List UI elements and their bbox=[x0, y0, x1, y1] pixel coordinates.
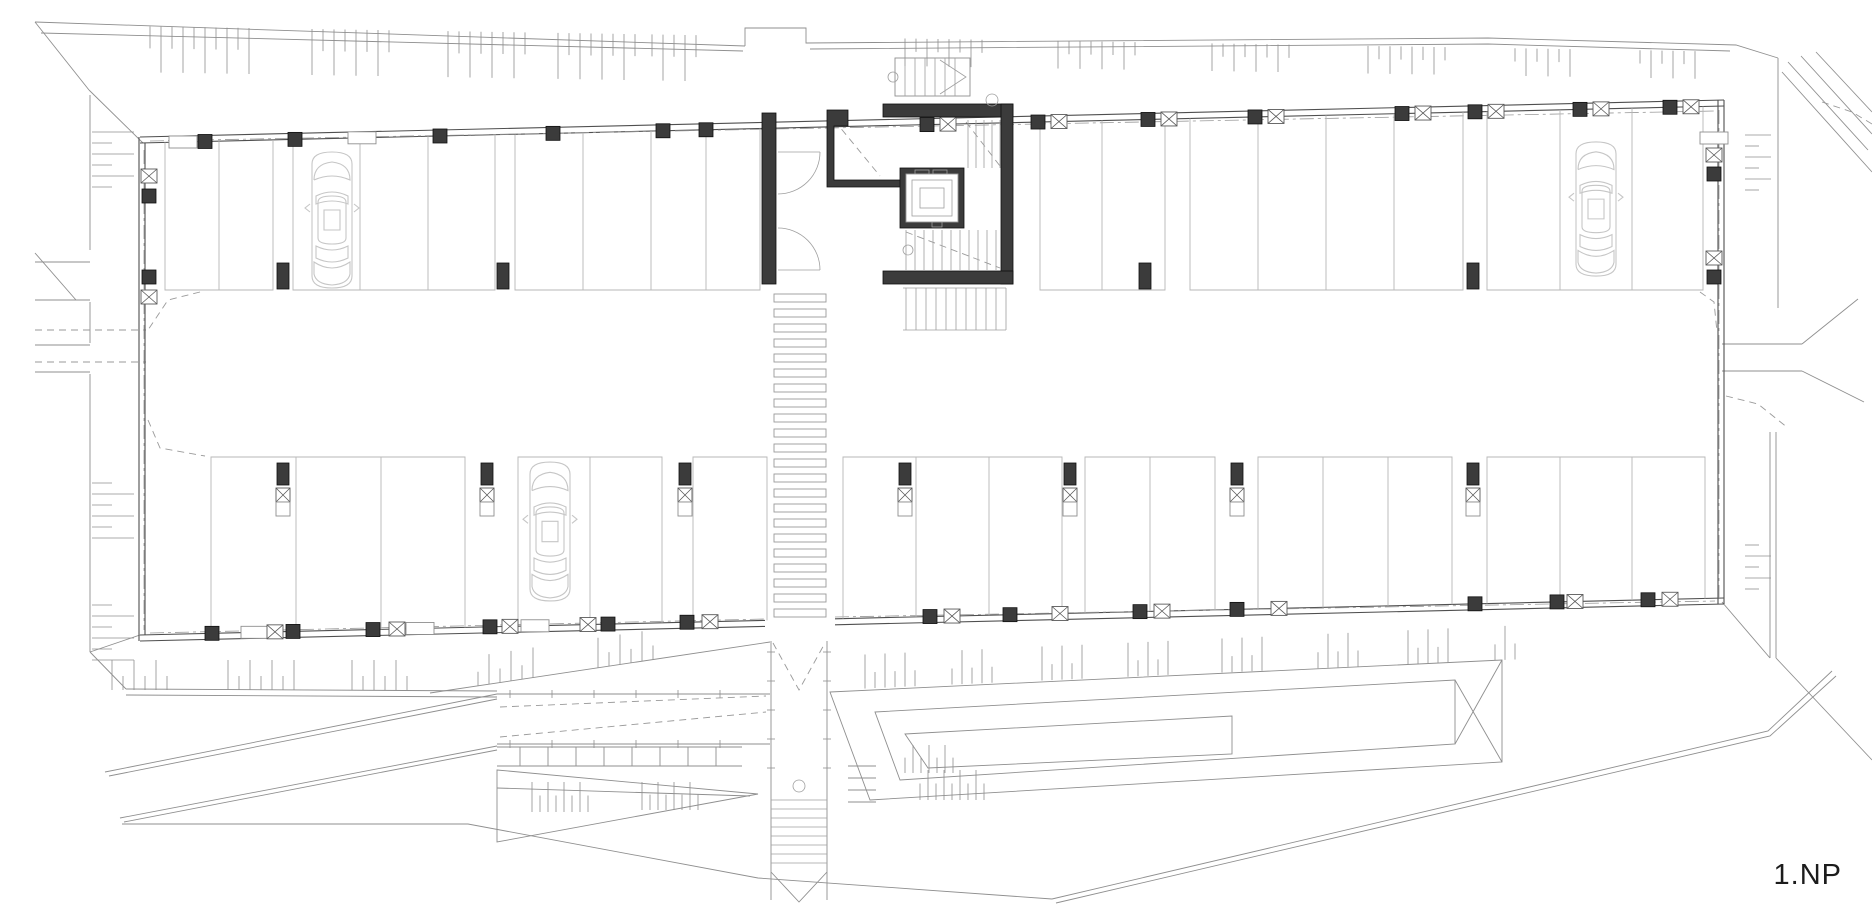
wall-niche bbox=[678, 502, 692, 516]
zebra-bar bbox=[774, 474, 826, 482]
zebra-bar bbox=[774, 414, 826, 422]
wall-niche bbox=[169, 136, 197, 148]
site-line bbox=[1722, 602, 1770, 658]
door-swing-arc bbox=[778, 228, 820, 270]
ramp-centerline bbox=[500, 712, 766, 737]
site-line bbox=[1788, 62, 1868, 150]
interior-column bbox=[679, 463, 691, 485]
zebra-bar bbox=[774, 519, 826, 527]
zebra-bar bbox=[774, 294, 826, 302]
dashed-guide-line bbox=[1726, 396, 1788, 428]
core-wall bbox=[1001, 104, 1013, 284]
wall-niche bbox=[241, 626, 269, 638]
car-line bbox=[1618, 193, 1623, 201]
wall-niche bbox=[406, 622, 434, 634]
site-boundary bbox=[35, 22, 1872, 903]
door-swing-arc bbox=[778, 152, 820, 194]
wall-bottom-outer bbox=[140, 626, 765, 641]
car-line bbox=[305, 204, 310, 212]
column-marker bbox=[288, 132, 302, 146]
site-line bbox=[1802, 299, 1858, 344]
zebra-bar bbox=[774, 309, 826, 317]
column-marker bbox=[546, 126, 560, 140]
elevator-interior bbox=[906, 174, 958, 222]
pedestrian-walkway bbox=[767, 294, 831, 902]
column-marker bbox=[1468, 597, 1482, 611]
site-line bbox=[1801, 56, 1872, 134]
ramp-terrace-outline bbox=[830, 660, 1502, 800]
site-line bbox=[1802, 371, 1864, 402]
parking-group-top bbox=[1487, 106, 1703, 290]
wall-niche bbox=[1700, 132, 1728, 144]
column-marker bbox=[205, 626, 219, 640]
zebra-bar bbox=[774, 384, 826, 392]
stair-elevator-core bbox=[762, 58, 1013, 330]
column-marker bbox=[142, 270, 156, 284]
dashed-guide-line bbox=[834, 120, 880, 176]
wall-niche bbox=[1230, 502, 1244, 516]
site-line bbox=[430, 642, 770, 693]
car-line bbox=[318, 196, 346, 244]
core-wall bbox=[827, 110, 906, 187]
car-line bbox=[532, 472, 568, 490]
site-line bbox=[126, 689, 497, 691]
site-line bbox=[1056, 676, 1836, 903]
column-marker bbox=[1248, 110, 1262, 124]
zebra-bar bbox=[774, 399, 826, 407]
site-line bbox=[89, 90, 143, 143]
zebra-bar bbox=[774, 564, 826, 572]
column-marker bbox=[920, 118, 934, 132]
zebra-bar bbox=[774, 504, 826, 512]
zebra-bar bbox=[774, 354, 826, 362]
car-line bbox=[534, 558, 566, 574]
floor-plan-drawing bbox=[0, 0, 1872, 906]
zebra-bar bbox=[774, 594, 826, 602]
column-marker bbox=[1573, 102, 1587, 116]
zebra-bar bbox=[774, 549, 826, 557]
parking-group-bottom bbox=[1258, 457, 1452, 609]
interior-column bbox=[481, 463, 493, 485]
core-wall bbox=[883, 271, 1013, 284]
car-line bbox=[1580, 235, 1612, 251]
car-line bbox=[314, 262, 350, 285]
site-line bbox=[745, 28, 1778, 58]
wall-bottom-inner bbox=[140, 620, 765, 635]
site-line bbox=[1052, 671, 1832, 899]
site-line bbox=[124, 750, 497, 822]
car-line bbox=[354, 204, 359, 212]
car-line bbox=[542, 521, 558, 541]
car-top-view bbox=[1569, 142, 1623, 276]
wall-niche bbox=[1466, 502, 1480, 516]
column-marker bbox=[198, 134, 212, 148]
dashed-guide-line bbox=[1822, 102, 1872, 124]
column-marker bbox=[680, 615, 694, 629]
stair-handrail-post bbox=[888, 72, 898, 82]
wall-niche bbox=[480, 502, 494, 516]
dashed-guide-line bbox=[773, 643, 825, 690]
site-line bbox=[109, 699, 497, 776]
column-marker bbox=[656, 124, 670, 138]
ramp-centerline bbox=[500, 696, 766, 707]
column-marker bbox=[483, 620, 497, 634]
zebra-bar bbox=[774, 579, 826, 587]
car-top-view bbox=[523, 462, 577, 601]
site-line bbox=[35, 22, 745, 46]
interior-column bbox=[277, 463, 289, 485]
car-line bbox=[1578, 250, 1614, 273]
car-line bbox=[523, 515, 528, 523]
wall-niche bbox=[276, 502, 290, 516]
ramp-fold-line bbox=[1455, 680, 1502, 762]
column-marker bbox=[142, 189, 156, 203]
column-marker bbox=[1641, 593, 1655, 607]
car-line bbox=[1569, 193, 1574, 201]
zebra-bar bbox=[774, 444, 826, 452]
car-line bbox=[1588, 199, 1604, 219]
car-line bbox=[572, 515, 577, 523]
interior-column bbox=[1064, 463, 1076, 485]
ramp-structures bbox=[497, 660, 1502, 842]
parking-group-bottom bbox=[693, 457, 767, 622]
column-marker bbox=[1230, 602, 1244, 616]
zebra-bar bbox=[774, 609, 826, 617]
dashed-guide-line bbox=[148, 420, 205, 456]
column-marker bbox=[1141, 112, 1155, 126]
ramp-funnel bbox=[497, 770, 758, 842]
parking-group-bottom bbox=[843, 457, 1062, 619]
site-line bbox=[1776, 658, 1872, 760]
column-marker bbox=[1031, 115, 1045, 129]
stair-direction-arrow bbox=[940, 60, 966, 94]
dashed-guide-line bbox=[906, 232, 1000, 268]
car-line bbox=[316, 246, 348, 262]
site-line bbox=[35, 22, 89, 90]
column-marker bbox=[433, 129, 447, 143]
column-marker bbox=[1707, 167, 1721, 181]
column-marker bbox=[699, 123, 713, 137]
zebra-bar bbox=[774, 324, 826, 332]
zebra-bar bbox=[774, 429, 826, 437]
column-marker bbox=[1707, 270, 1721, 284]
column-marker bbox=[1003, 608, 1017, 622]
zebra-bar bbox=[774, 339, 826, 347]
site-line bbox=[810, 44, 1730, 51]
car-line bbox=[314, 162, 350, 180]
core-wall bbox=[762, 113, 776, 284]
zebra-bar bbox=[774, 489, 826, 497]
ramp-terrace-outline bbox=[905, 716, 1232, 768]
zebra-bar bbox=[774, 534, 826, 542]
parking-group-top bbox=[1190, 112, 1463, 290]
stair-handrail-post bbox=[903, 245, 913, 255]
interior-column bbox=[1231, 463, 1243, 485]
car-top-view bbox=[305, 152, 359, 288]
car-line bbox=[324, 210, 340, 230]
parking-group-top bbox=[515, 129, 760, 290]
interior-column bbox=[497, 263, 509, 289]
zebra-bar bbox=[774, 369, 826, 377]
exterior-stair bbox=[895, 58, 970, 96]
column-marker bbox=[1468, 105, 1482, 119]
dashed-guide-line bbox=[1700, 292, 1717, 332]
site-line bbox=[35, 253, 76, 300]
car-line bbox=[1578, 152, 1614, 170]
site-line bbox=[126, 695, 497, 697]
parking-group-bottom bbox=[211, 457, 465, 633]
interior-column bbox=[1467, 263, 1479, 289]
zebra-bar bbox=[774, 459, 826, 467]
wall-niche bbox=[1063, 502, 1077, 516]
site-line bbox=[1782, 72, 1872, 172]
wall-niche bbox=[521, 620, 549, 632]
column-marker bbox=[601, 617, 615, 631]
corridor-end bbox=[771, 872, 827, 902]
corridor-handrail-post bbox=[793, 780, 805, 792]
site-line bbox=[90, 652, 126, 689]
interior-column bbox=[277, 263, 289, 289]
car-line bbox=[532, 574, 568, 597]
site-line bbox=[105, 694, 497, 772]
column-marker bbox=[366, 623, 380, 637]
car-line bbox=[1582, 185, 1610, 232]
parking-group-bottom bbox=[1487, 457, 1705, 604]
column-marker bbox=[923, 610, 937, 624]
ramp-funnel-line bbox=[497, 788, 750, 796]
site-line bbox=[122, 824, 1052, 899]
floor-label: 1.NP bbox=[1774, 859, 1842, 892]
interior-column bbox=[1139, 263, 1151, 289]
column-marker bbox=[1133, 605, 1147, 619]
car-line bbox=[536, 507, 564, 556]
wall-niche bbox=[348, 132, 376, 144]
floor-plan-page: 1.NP bbox=[0, 0, 1872, 906]
interior-column bbox=[899, 463, 911, 485]
ramp-terrace-outline bbox=[875, 680, 1455, 780]
column-marker bbox=[1550, 595, 1564, 609]
column-marker bbox=[286, 624, 300, 638]
site-line bbox=[90, 635, 140, 652]
ramp-fold-line bbox=[1455, 660, 1502, 744]
column-marker bbox=[1663, 100, 1677, 114]
wall-niche bbox=[898, 502, 912, 516]
interior-column bbox=[1467, 463, 1479, 485]
site-line bbox=[120, 746, 497, 818]
dashed-guide-line bbox=[966, 122, 1000, 166]
column-marker bbox=[1395, 107, 1409, 121]
